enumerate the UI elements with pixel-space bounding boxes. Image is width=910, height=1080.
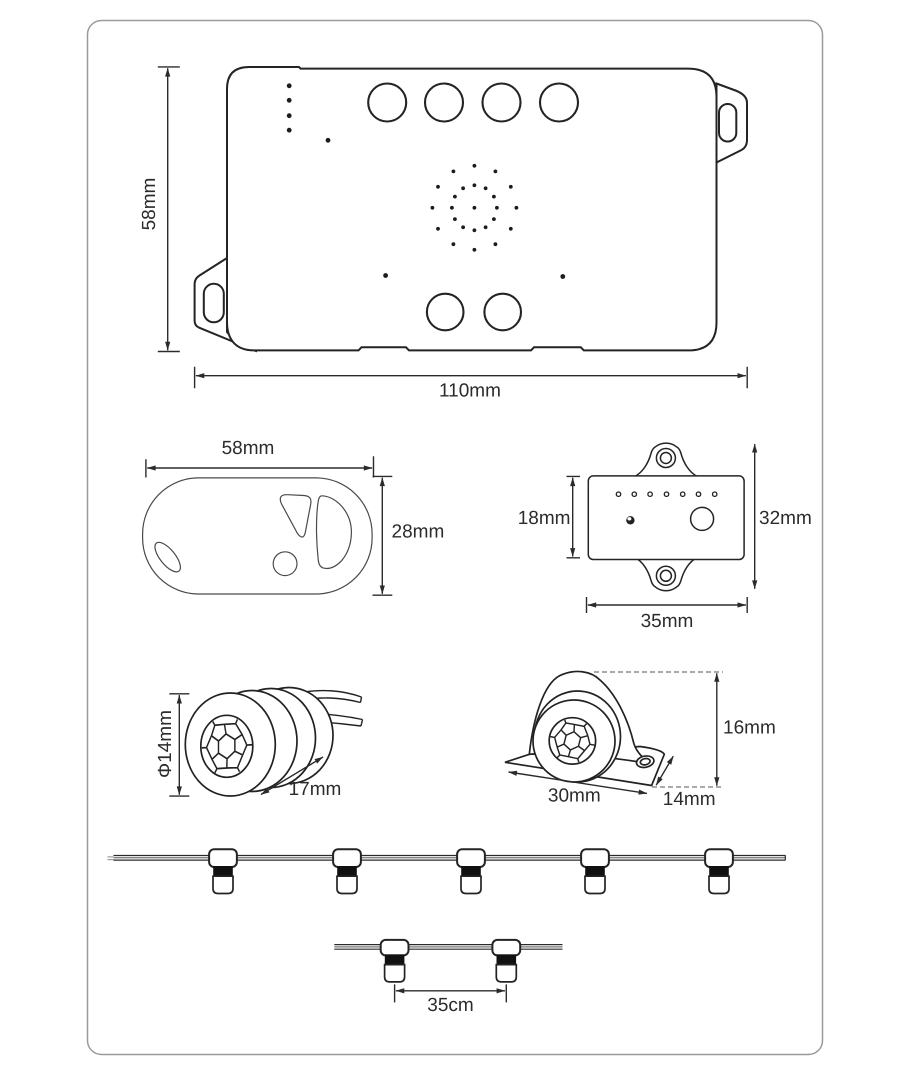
svg-text:32mm: 32mm xyxy=(759,508,812,529)
svg-text:58mm: 58mm xyxy=(222,438,275,459)
svg-text:35cm: 35cm xyxy=(427,995,473,1016)
svg-text:Φ14mm: Φ14mm xyxy=(155,710,176,778)
svg-text:18mm: 18mm xyxy=(518,508,571,529)
svg-text:110mm: 110mm xyxy=(439,381,501,402)
svg-text:58mm: 58mm xyxy=(139,178,160,231)
svg-text:17mm: 17mm xyxy=(289,779,342,800)
svg-text:28mm: 28mm xyxy=(392,522,445,543)
svg-text:16mm: 16mm xyxy=(723,718,776,739)
svg-text:35mm: 35mm xyxy=(641,611,694,632)
svg-text:14mm: 14mm xyxy=(663,789,716,810)
svg-text:30mm: 30mm xyxy=(548,786,601,807)
